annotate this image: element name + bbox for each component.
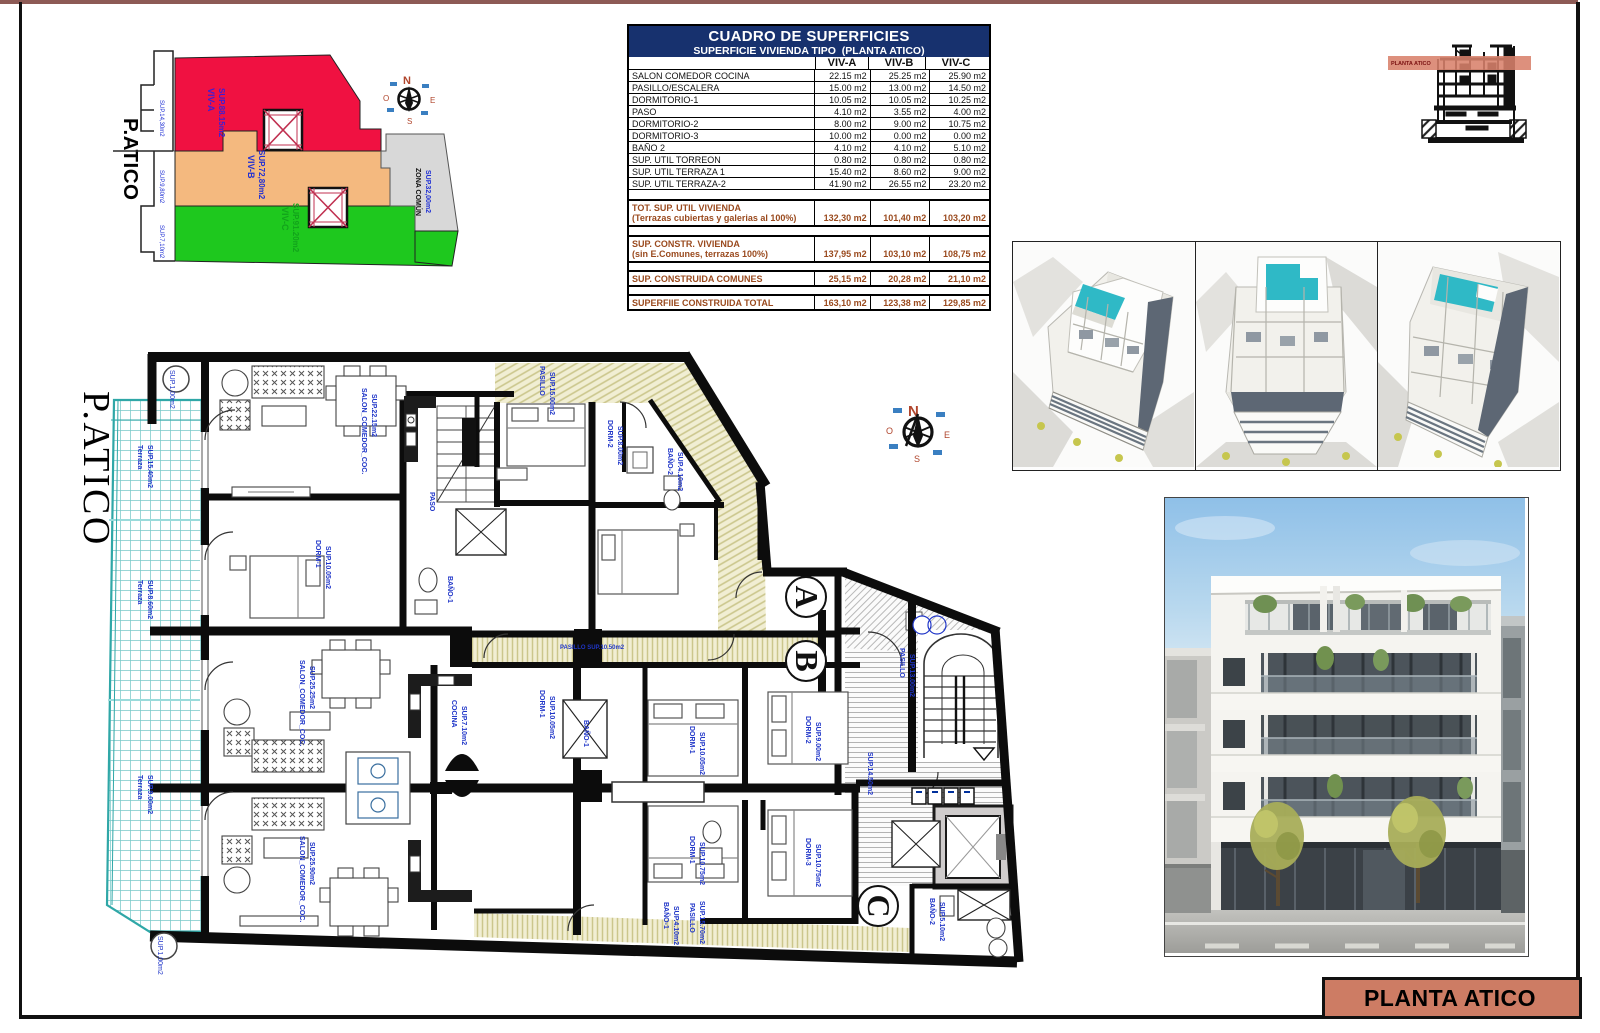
svg-text:VIV-B: VIV-B [246,155,256,179]
svg-text:SUP.13.00m2: SUP.13.00m2 [908,654,915,697]
svg-text:S: S [407,117,412,126]
svg-text:SUP.8.60m2: SUP.8.60m2 [146,580,153,619]
svg-text:SUP.10.75m2: SUP.10.75m2 [698,842,705,885]
svg-text:ZONA COMÚN: ZONA COMÚN [414,168,423,216]
svg-text:A: A [789,585,825,608]
svg-text:E: E [430,96,435,105]
svg-text:P.ATICO: P.ATICO [119,118,142,200]
svg-text:DORM-1: DORM-1 [688,836,695,864]
svg-text:SUP.15.00m2: SUP.15.00m2 [548,372,555,415]
svg-text:C: C [861,894,897,917]
svg-text:Terraza: Terraza [136,775,143,799]
svg-text:SALON_COMEDOR_COC.: SALON_COMEDOR_COC. [298,660,305,746]
svg-text:SUP.32,00m2: SUP.32,00m2 [424,170,431,213]
svg-text:COCINA: COCINA [450,700,457,728]
svg-text:P.ATICO: P.ATICO [75,391,117,547]
svg-text:DORM-2: DORM-2 [804,716,811,744]
svg-text:DORM-2: DORM-2 [606,420,613,448]
svg-text:DORM-1: DORM-1 [688,726,695,754]
svg-text:SUP.1,00m2: SUP.1,00m2 [156,936,163,975]
svg-text:SUP.5.10m2: SUP.5.10m2 [938,902,945,941]
svg-text:SUP.15.70m2: SUP.15.70m2 [698,901,705,944]
svg-text:DORM-3: DORM-3 [804,838,811,866]
svg-text:DORM-1: DORM-1 [314,540,321,568]
svg-text:B: B [789,650,825,671]
svg-text:VIV-C: VIV-C [280,207,290,231]
svg-text:SALON_COMEDOR_COC.: SALON_COMEDOR_COC. [298,836,305,922]
svg-text:O: O [886,426,893,436]
svg-text:SUP.88.15m2: SUP.88.15m2 [217,88,226,138]
svg-text:O: O [383,94,389,103]
svg-text:PASO: PASO [428,492,435,512]
svg-text:VIV-A: VIV-A [206,88,216,112]
svg-text:SUP.72,80m2: SUP.72,80m2 [257,150,266,200]
svg-text:BAÑO-2: BAÑO-2 [928,898,937,925]
svg-text:Terraza: Terraza [136,445,143,469]
svg-text:Terraza: Terraza [136,580,143,604]
svg-text:SUP.10.05m2: SUP.10.05m2 [698,732,705,775]
svg-text:SUP.9.00m2: SUP.9.00m2 [814,722,821,761]
svg-text:PASILLO: PASILLO [688,903,695,933]
svg-text:SUP.1,00m2: SUP.1,00m2 [168,370,175,409]
svg-text:SUP.10.05m2: SUP.10.05m2 [324,546,331,589]
svg-text:SUP.91.20m2: SUP.91.20m2 [291,203,300,253]
svg-text:SUP.25.25m2: SUP.25.25m2 [308,666,315,709]
svg-text:SUP.25.90m2: SUP.25.90m2 [308,842,315,885]
svg-text:SUP.7,10m2: SUP.7,10m2 [158,225,164,259]
svg-text:BAÑO-2: BAÑO-2 [666,448,675,475]
svg-text:SUP.9,80m2: SUP.9,80m2 [158,170,164,204]
svg-text:SUP.4.10m2: SUP.4.10m2 [672,906,679,945]
svg-text:SUP.4.10m2: SUP.4.10m2 [676,452,683,491]
svg-text:SALON_COMEDOR_COC.: SALON_COMEDOR_COC. [360,388,367,474]
svg-text:PASILLO SUP.10.50m2: PASILLO SUP.10.50m2 [560,645,625,651]
svg-text:SUP.15.40m2: SUP.15.40m2 [146,445,153,488]
svg-text:BAÑO-1: BAÑO-1 [582,720,591,747]
svg-text:SUP.10.75m2: SUP.10.75m2 [814,844,821,887]
svg-text:SUP.14,30m2: SUP.14,30m2 [158,100,164,137]
svg-text:DORM-1: DORM-1 [538,690,545,718]
svg-text:SUP.8.00m2: SUP.8.00m2 [616,426,623,465]
svg-text:PASILLO: PASILLO [538,366,545,396]
svg-text:PASILLO: PASILLO [898,648,905,678]
svg-text:BAÑO-1: BAÑO-1 [662,902,671,929]
svg-text:SUP.9.00m2: SUP.9.00m2 [146,775,153,814]
svg-text:BAÑO-1: BAÑO-1 [446,576,455,603]
svg-text:SUP.22.15m2: SUP.22.15m2 [370,394,377,437]
svg-text:S: S [914,454,920,464]
svg-text:SUP.7.10m2: SUP.7.10m2 [460,706,467,745]
svg-text:N: N [403,75,411,87]
svg-text:SUP.14.50m2: SUP.14.50m2 [866,752,873,795]
svg-text:SUP.10.05m2: SUP.10.05m2 [548,696,555,739]
svg-text:E: E [944,430,950,440]
svg-text:PLANTA ATICO: PLANTA ATICO [1391,61,1431,67]
